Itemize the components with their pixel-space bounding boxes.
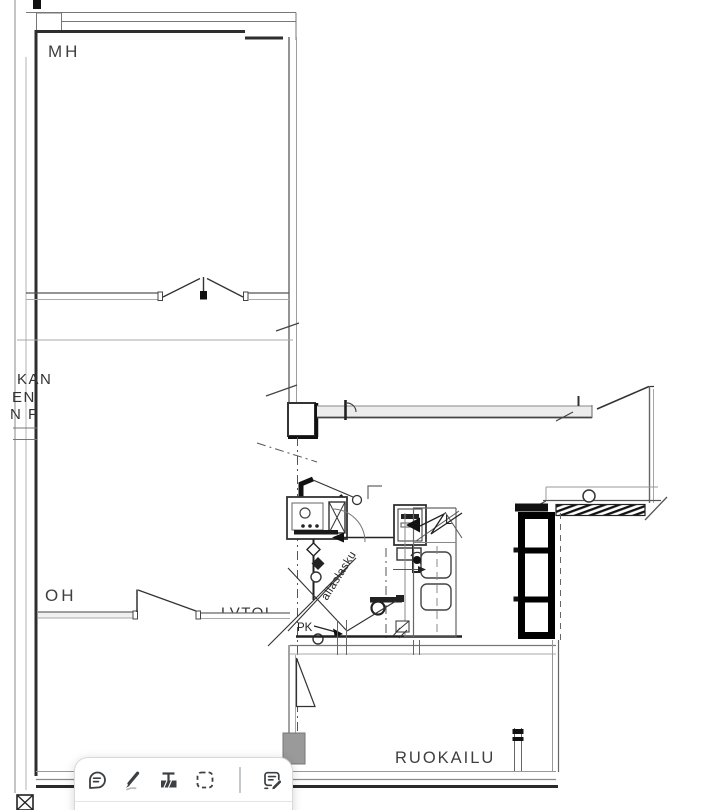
- center-vertical-wall: [266, 37, 299, 403]
- edge-text-1: KAN: [17, 371, 52, 388]
- floorplan-drawing: MH KAN EN N F OH LVTOI: [0, 0, 716, 810]
- right-door-swing: [597, 386, 654, 503]
- selection-capture-tool-button[interactable]: [188, 763, 222, 797]
- room-label-ruokailu: RUOKAILU: [395, 749, 495, 767]
- left-wall-section-marks: [13, 428, 37, 440]
- highlighter-pen-tool-button[interactable]: [116, 763, 150, 797]
- pk-label: PK: [297, 622, 313, 634]
- comment-tool-button[interactable]: [80, 763, 114, 797]
- selection-capture-icon: [193, 768, 217, 792]
- center-column: [288, 403, 318, 438]
- annotation-toolbar: [74, 757, 293, 810]
- mh-bottom-wall-double-door: [26, 277, 289, 301]
- toolbar-separator: [75, 801, 292, 802]
- room-label-mh: MH: [48, 42, 80, 61]
- comment-icon: [85, 768, 109, 792]
- highlighter-pen-icon: [121, 768, 145, 792]
- edge-text-3: N F: [10, 406, 39, 423]
- text-highlight-tool-button[interactable]: [152, 763, 186, 797]
- grid-unit: [514, 513, 561, 640]
- note-edit-tool-button[interactable]: [255, 763, 289, 797]
- text-highlight-icon: [157, 768, 181, 792]
- note-edit-icon: [260, 768, 284, 792]
- long-horizontal-wall: [317, 396, 592, 421]
- edge-text-2: EN: [12, 389, 36, 406]
- floorplan-viewer: MH KAN EN N F OH LVTOI: [0, 0, 716, 810]
- top-wall: [26, 0, 296, 40]
- room-label-oh: OH: [45, 586, 77, 605]
- toolbar-divider: [239, 767, 241, 793]
- toolbar-row: [75, 758, 292, 802]
- right-lower-wall: [513, 640, 559, 772]
